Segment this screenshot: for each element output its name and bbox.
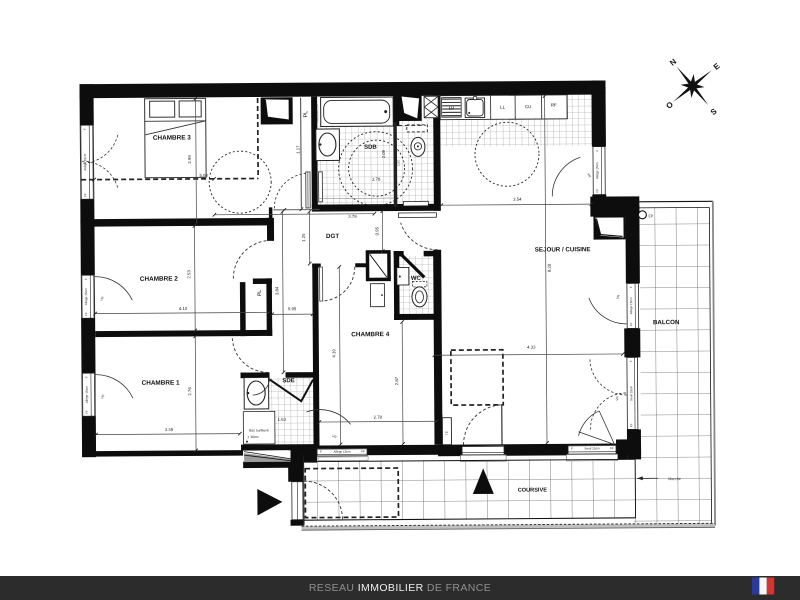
svg-text:± 10cm: ± 10cm	[247, 435, 258, 439]
svg-text:0.95: 0.95	[288, 306, 297, 311]
svg-text:CU: CU	[525, 104, 531, 109]
svg-text:CHAMBRE 2: CHAMBRE 2	[140, 276, 178, 283]
svg-text:FF: FF	[595, 189, 599, 193]
svg-text:CHAMBRE 1: CHAMBRE 1	[142, 380, 180, 387]
svg-text:F: F	[83, 128, 87, 130]
svg-text:SEJOUR / CUISINE: SEJOUR / CUISINE	[535, 246, 591, 253]
svg-text:1.17: 1.17	[295, 145, 300, 154]
svg-text:F: F	[85, 376, 89, 378]
svg-text:Allège 15cm: Allège 15cm	[629, 297, 633, 314]
svg-text:F: F	[84, 278, 88, 280]
svg-text:2.78: 2.78	[372, 177, 381, 182]
svg-text:3.54: 3.54	[513, 197, 522, 202]
svg-text:F: F	[320, 450, 322, 454]
svg-text:1.63: 1.63	[278, 417, 287, 422]
svg-text:VR: VR	[615, 395, 619, 400]
svg-text:Allège 15cm: Allège 15cm	[595, 162, 599, 179]
svg-text:BALCON: BALCON	[653, 319, 680, 326]
svg-text:Allège 15cm: Allège 15cm	[85, 386, 89, 403]
svg-text:2.53: 2.53	[186, 270, 191, 279]
svg-text:SDE: SDE	[282, 378, 294, 384]
svg-text:FF: FF	[85, 410, 89, 414]
svg-text:Marche: Marche	[668, 477, 681, 481]
svg-text:DGT: DGT	[326, 233, 339, 240]
svg-text:1.25: 1.25	[301, 233, 306, 242]
svg-text:FF: FF	[610, 446, 614, 450]
svg-text:3.39: 3.39	[165, 427, 174, 432]
svg-text:RF: RF	[551, 102, 557, 107]
svg-text:EP: EP	[649, 214, 654, 218]
svg-text:FF: FF	[83, 193, 87, 197]
svg-text:2.99: 2.99	[187, 155, 192, 164]
svg-text:SDB: SDB	[364, 145, 377, 151]
svg-text:1.50: 1.50	[397, 160, 401, 167]
svg-text:FF: FF	[84, 312, 88, 316]
svg-text:2.78: 2.78	[374, 415, 383, 420]
svg-text:Seuil 15cm: Seuil 15cm	[584, 446, 600, 450]
svg-text:BAIGNOIRE 170: BAIGNOIRE 170	[316, 104, 319, 123]
svg-text:3.79: 3.79	[348, 214, 357, 219]
svg-text:4.33: 4.33	[527, 345, 536, 350]
svg-text:4.19: 4.19	[331, 349, 336, 358]
svg-text:Allège 15cm: Allège 15cm	[84, 288, 88, 305]
svg-text:Allège 15cm: Allège 15cm	[83, 153, 87, 170]
svg-text:8.20: 8.20	[547, 263, 552, 272]
svg-text:4.10: 4.10	[179, 306, 188, 311]
svg-text:FF: FF	[361, 450, 365, 454]
svg-text:LL: LL	[500, 105, 505, 110]
svg-text:0.95: 0.95	[374, 226, 379, 235]
svg-text:CHAMBRE 3: CHAMBRE 3	[153, 134, 191, 141]
svg-text:CHAMBRE 4: CHAMBRE 4	[351, 331, 389, 338]
svg-text:Bac surélevé: Bac surélevé	[249, 428, 269, 432]
svg-text:COURSIVE: COURSIVE	[518, 487, 548, 493]
svg-text:Seuil 15cm: Seuil 15cm	[629, 385, 633, 401]
svg-text:2.87: 2.87	[394, 376, 399, 385]
svg-text:LV: LV	[449, 106, 454, 111]
svg-text:F: F	[629, 360, 633, 362]
svg-text:F: F	[571, 447, 573, 451]
svg-text:PL: PL	[303, 111, 309, 118]
svg-text:2.09: 2.09	[381, 149, 386, 158]
svg-text:3.84: 3.84	[274, 286, 279, 295]
svg-text:FF: FF	[629, 322, 633, 326]
svg-text:RESEAU IMMOBILIER DE FRANCE: RESEAU IMMOBILIER DE FRANCE	[309, 582, 491, 594]
svg-text:PL: PL	[257, 290, 263, 297]
svg-text:F: F	[629, 286, 633, 288]
svg-text:Allège 15cm: Allège 15cm	[334, 450, 351, 454]
svg-text:5.08: 5.08	[199, 173, 208, 178]
svg-text:F: F	[595, 150, 599, 152]
svg-text:FF: FF	[629, 423, 633, 427]
svg-text:TE: TE	[445, 431, 449, 435]
svg-text:2.76: 2.76	[187, 387, 192, 396]
svg-text:WC: WC	[411, 276, 422, 282]
